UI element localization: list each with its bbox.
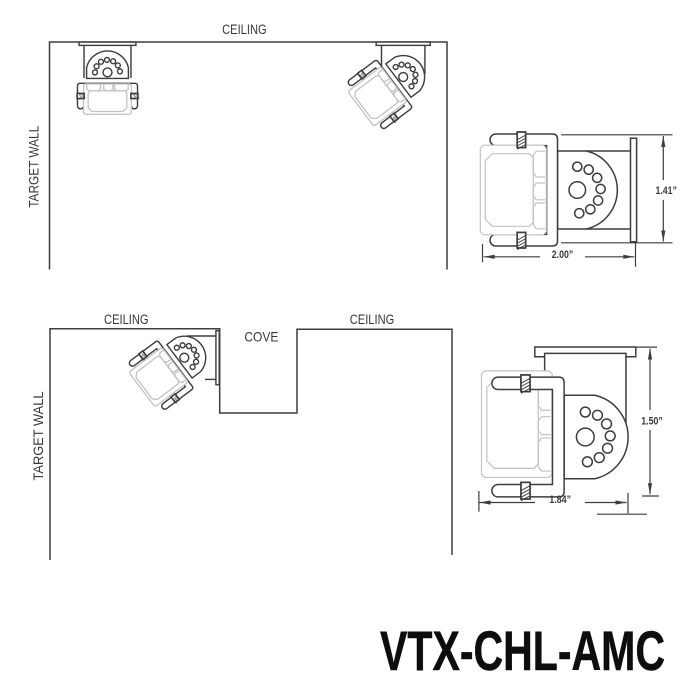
svg-text:1.84”: 1.84” — [549, 494, 571, 506]
svg-text:TARGET WALL: TARGET WALL — [27, 126, 42, 208]
svg-text:TARGET WALL: TARGET WALL — [31, 391, 46, 480]
svg-text:COVE: COVE — [244, 328, 278, 344]
svg-text:1.50”: 1.50” — [641, 416, 663, 428]
svg-text:CEILING: CEILING — [104, 312, 149, 327]
svg-text:VTX-CHL-AMC: VTX-CHL-AMC — [380, 620, 665, 682]
svg-text:CEILING: CEILING — [350, 312, 395, 327]
svg-text:CEILING: CEILING — [222, 22, 267, 37]
svg-text:2.00”: 2.00” — [552, 249, 574, 261]
svg-text:1.41”: 1.41” — [655, 185, 677, 197]
